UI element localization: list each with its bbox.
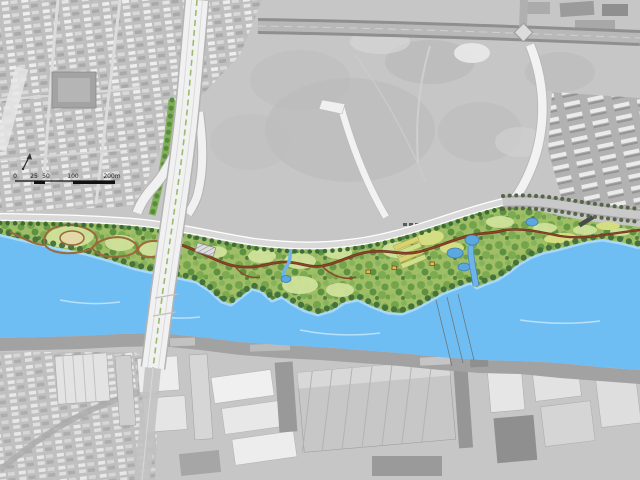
map-canvas: 0 25 50 100 200m bbox=[0, 0, 640, 480]
scale-label-100: 100 bbox=[67, 173, 79, 180]
scale-label-0: 0 bbox=[13, 173, 17, 180]
scale-label-25: 25 bbox=[30, 173, 38, 180]
scale-label-200m: 200m bbox=[103, 173, 120, 180]
scale-label-50: 50 bbox=[42, 173, 50, 180]
large-factory bbox=[295, 359, 455, 452]
masterplan-map: 0 25 50 100 200m bbox=[0, 0, 640, 480]
